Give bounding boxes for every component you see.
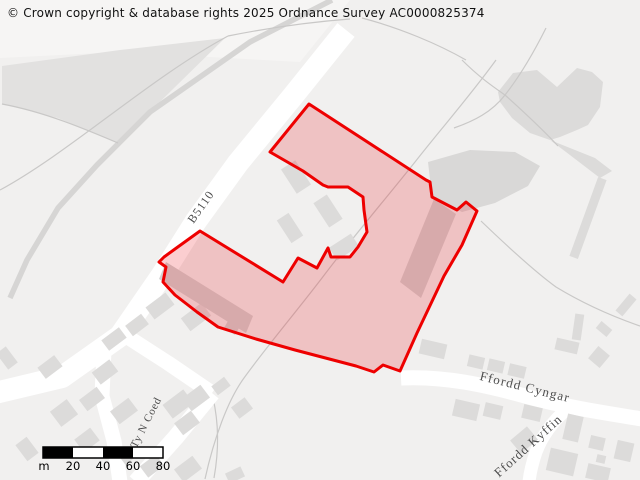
map-canvas: B5110Ffordd CyngarFfordd KyffinTy N Coed… xyxy=(0,0,640,480)
copyright-text: © Crown copyright & database rights 2025… xyxy=(7,6,485,20)
scale-bar-label: 40 xyxy=(96,459,111,473)
scale-bar-label: 20 xyxy=(66,459,81,473)
scale-bar-label: 60 xyxy=(126,459,141,473)
scale-bar-segment xyxy=(43,447,73,458)
map-viewport: B5110Ffordd CyngarFfordd KyffinTy N Coed… xyxy=(0,0,640,480)
scale-bar-label: 80 xyxy=(156,459,171,473)
scale-bar-segment xyxy=(103,447,133,458)
scale-bar-unit: m xyxy=(38,459,49,473)
